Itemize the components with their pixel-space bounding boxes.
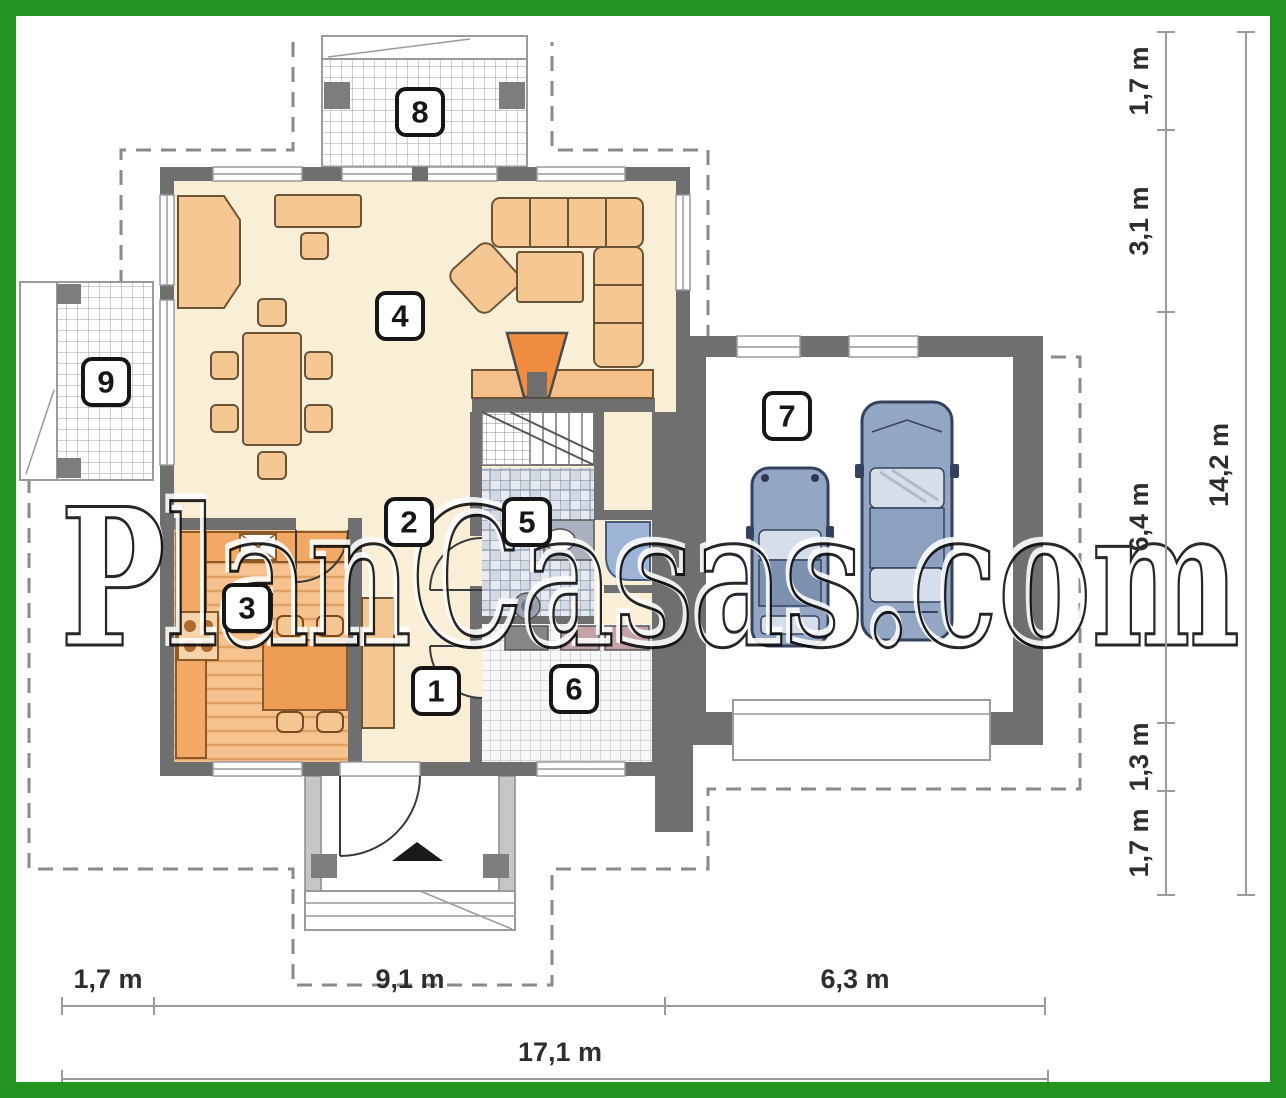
room-badge-8: 8 — [397, 89, 443, 135]
porch-steps — [305, 891, 515, 930]
watermark-text: PlanCasas.com — [60, 467, 1240, 690]
svg-text:9: 9 — [97, 365, 114, 400]
chair — [211, 352, 238, 379]
room-badge-1: 1 — [413, 668, 459, 714]
stairs — [482, 412, 594, 465]
dim-label-right-2: 3,1 m — [1124, 186, 1154, 255]
chair — [317, 712, 343, 732]
entrance-door-opening — [340, 762, 420, 776]
svg-text:2: 2 — [400, 505, 417, 540]
watermark: PlanCasas.com PlanCasas.com — [58, 464, 1240, 690]
terrace-post — [57, 284, 81, 304]
chair — [301, 233, 328, 259]
desk — [275, 195, 361, 227]
dim-label-right-5: 1,7 m — [1124, 808, 1154, 877]
svg-text:3: 3 — [238, 591, 255, 626]
terrace-post — [499, 82, 525, 109]
room-badge-6: 6 — [551, 666, 597, 712]
dim-label-bottom-2: 9,1 m — [375, 964, 444, 994]
garage-door — [733, 700, 990, 760]
dim-label-bottom-3: 6,3 m — [820, 964, 889, 994]
room-badge-3: 3 — [224, 585, 270, 631]
entrance-porch — [305, 776, 515, 930]
coffee-table — [517, 252, 583, 302]
room-badge-9: 9 — [83, 359, 129, 405]
dim-label-right-3: 6,4 m — [1124, 482, 1154, 551]
chair — [305, 405, 332, 432]
svg-text:4: 4 — [391, 299, 409, 334]
dim-label-right-1: 1,7 m — [1124, 46, 1154, 115]
svg-text:1: 1 — [427, 674, 444, 709]
floor-plan-svg: PlanCasas.com PlanCasas.com 1 2 3 4 5 6 — [0, 0, 1286, 1098]
svg-text:7: 7 — [778, 399, 795, 434]
corner-cabinet — [178, 196, 240, 308]
dim-label-right-total: 14,2 m — [1204, 423, 1234, 507]
svg-text:6: 6 — [565, 672, 582, 707]
floor-plan-page: PlanCasas.com PlanCasas.com 1 2 3 4 5 6 — [0, 0, 1286, 1098]
room-badge-5: 5 — [504, 499, 550, 545]
room-badge-2: 2 — [386, 499, 432, 545]
svg-text:5: 5 — [518, 505, 535, 540]
chair — [305, 352, 332, 379]
dining-table — [243, 333, 301, 445]
chair — [258, 299, 286, 326]
porch-post — [483, 854, 509, 878]
room-badge-7: 7 — [764, 393, 810, 439]
porch-post — [311, 854, 337, 878]
chair — [211, 405, 238, 432]
dim-label-bottom-total: 17,1 m — [518, 1037, 602, 1067]
dim-label-right-4: 1,3 m — [1124, 722, 1154, 791]
chair — [277, 712, 303, 732]
terrace-post — [324, 82, 350, 109]
dim-label-bottom-1: 1,7 m — [73, 964, 142, 994]
svg-text:8: 8 — [411, 95, 428, 130]
room-badge-4: 4 — [377, 293, 423, 339]
